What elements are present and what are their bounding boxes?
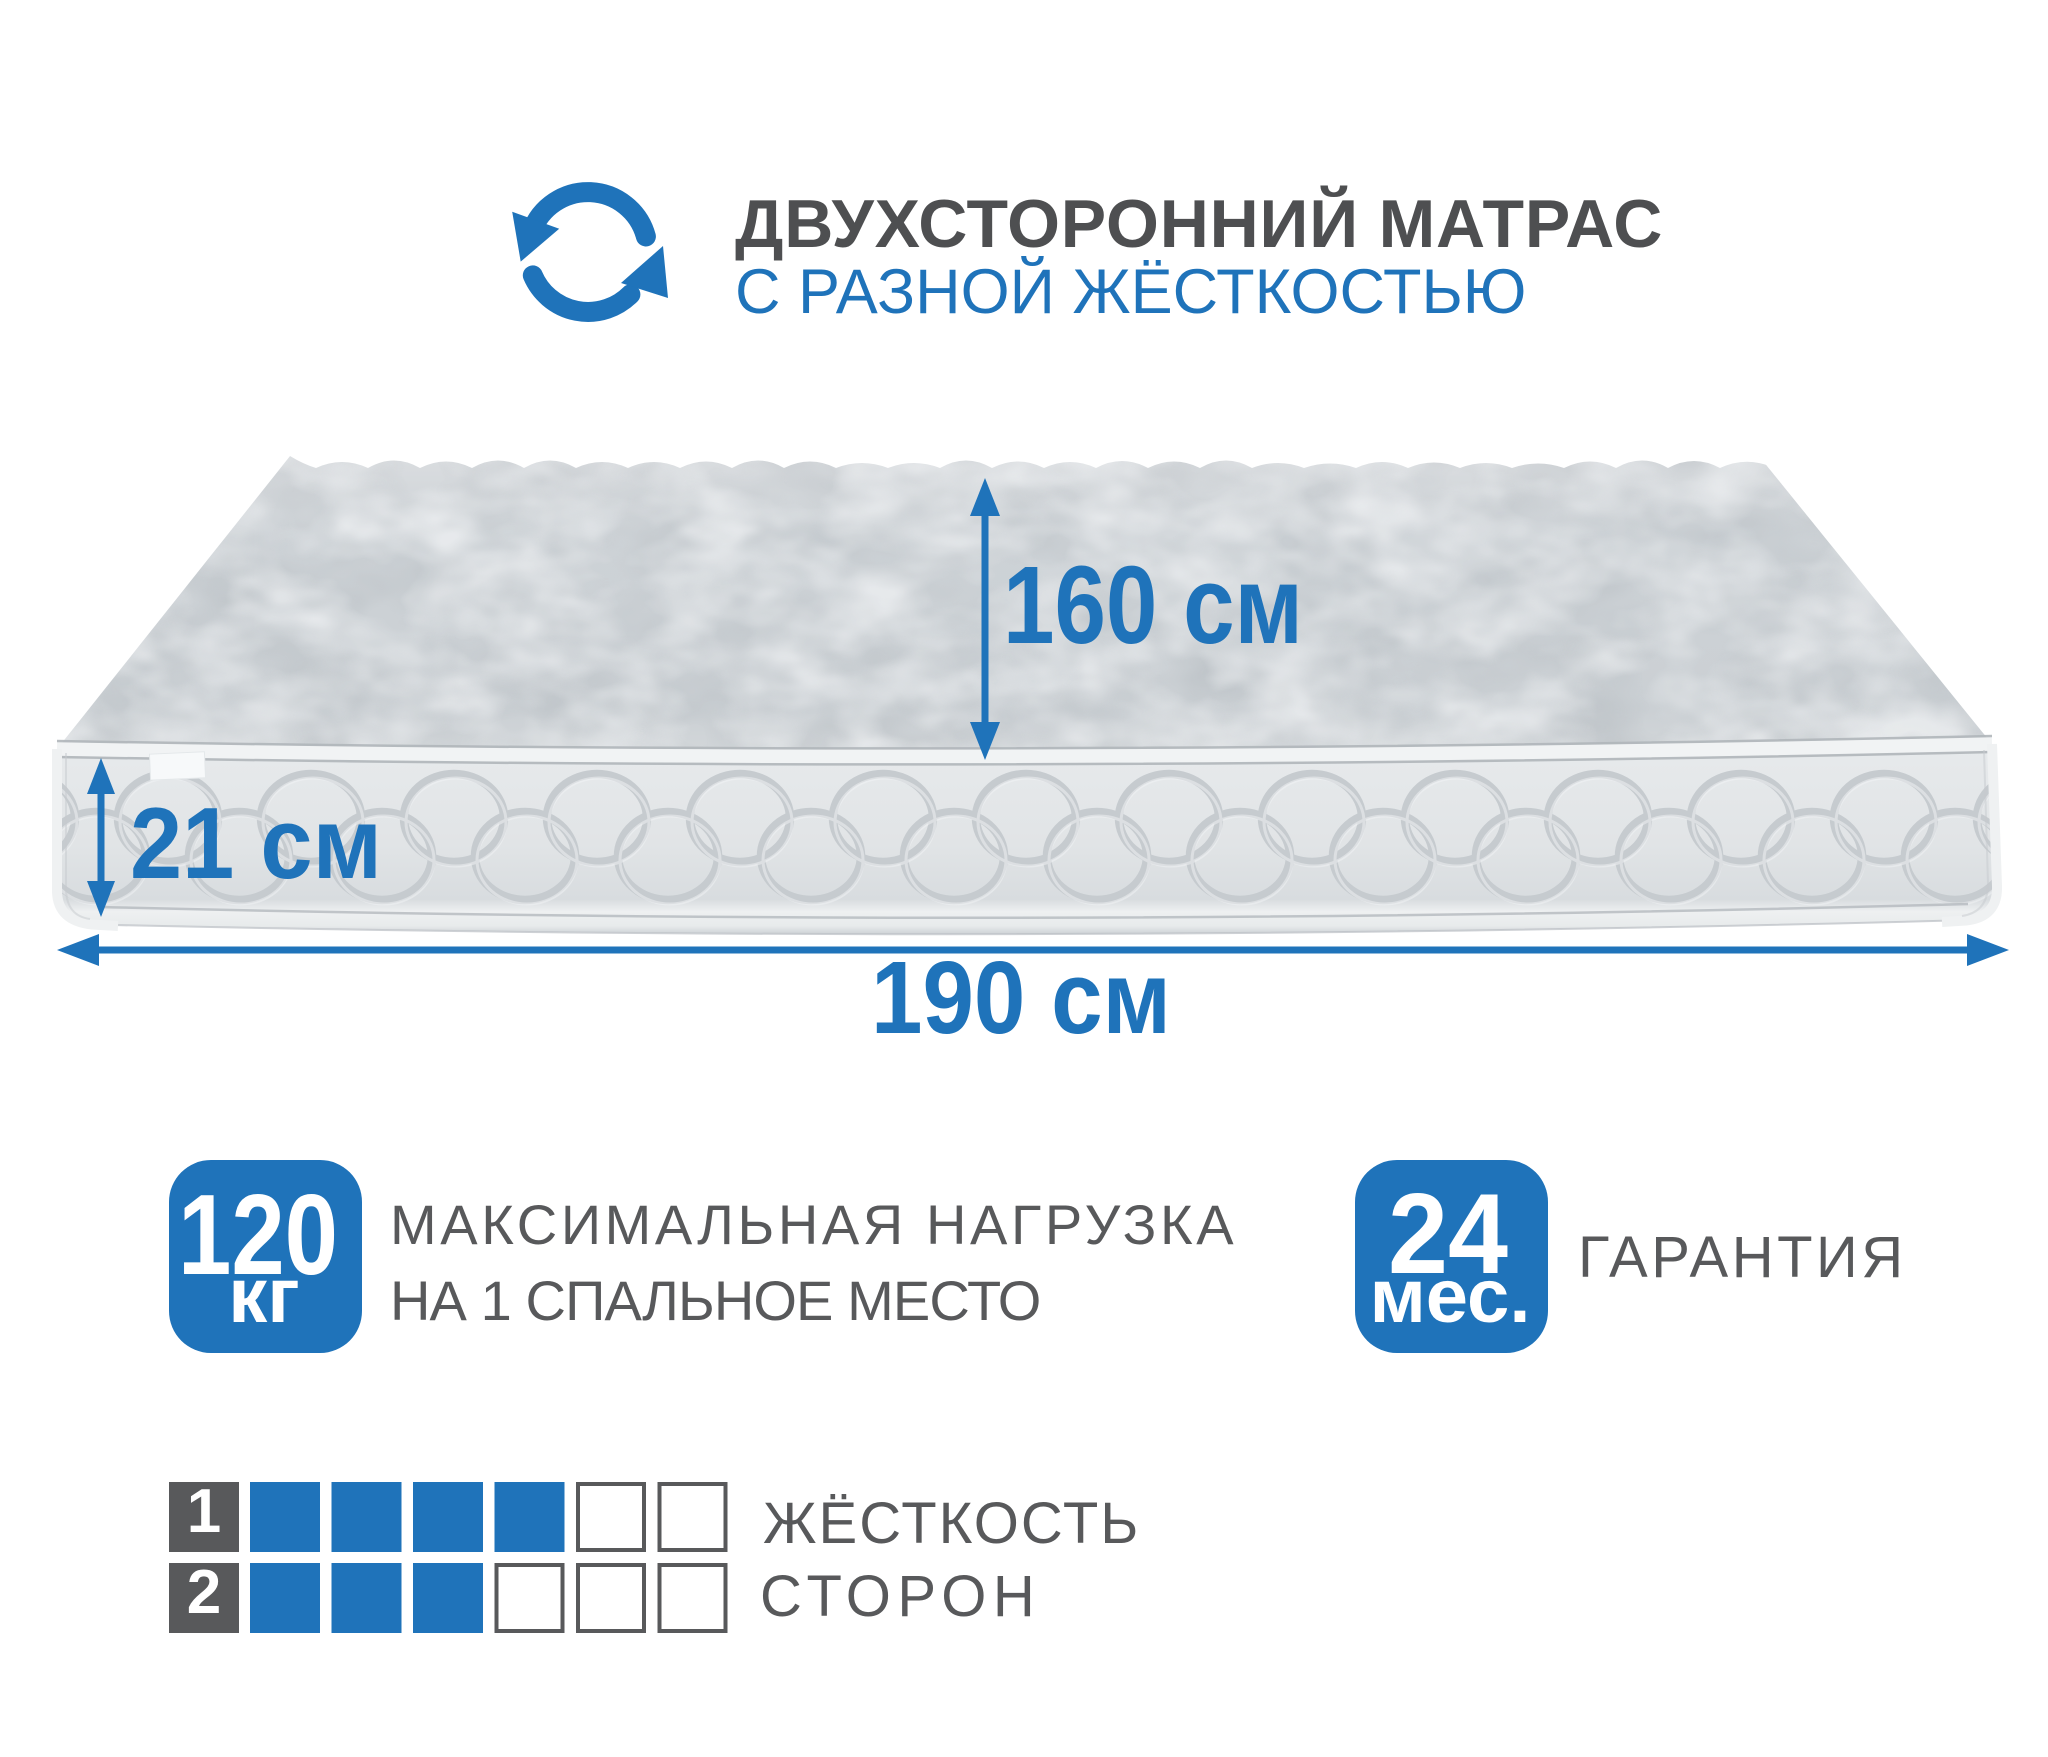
svg-text:ГАРАНТИЯ: ГАРАНТИЯ — [1578, 1225, 1907, 1290]
svg-text:ЖЁСТКОСТЬ: ЖЁСТКОСТЬ — [763, 1491, 1140, 1556]
svg-text:21 см: 21 см — [130, 788, 382, 900]
svg-text:190 см: 190 см — [871, 940, 1171, 1055]
svg-text:МАКСИМАЛЬНАЯ НАГРУЗКА: МАКСИМАЛЬНАЯ НАГРУЗКА — [390, 1193, 1237, 1256]
svg-text:1: 1 — [187, 1477, 221, 1546]
svg-text:СТОРОН: СТОРОН — [760, 1564, 1041, 1629]
svg-text:2: 2 — [187, 1558, 221, 1627]
svg-text:ДВУХСТОРОННИЙ МАТРАС: ДВУХСТОРОННИЙ МАТРАС — [735, 185, 1663, 262]
svg-text:160 см: 160 см — [1003, 544, 1303, 667]
svg-text:НА 1 СПАЛЬНОЕ МЕСТО: НА 1 СПАЛЬНОЕ МЕСТО — [390, 1269, 1040, 1332]
svg-text:С РАЗНОЙ ЖЁСТКОСТЬЮ: С РАЗНОЙ ЖЁСТКОСТЬЮ — [735, 256, 1526, 327]
svg-text:кг: кг — [228, 1251, 300, 1339]
svg-text:мес.: мес. — [1370, 1254, 1531, 1339]
